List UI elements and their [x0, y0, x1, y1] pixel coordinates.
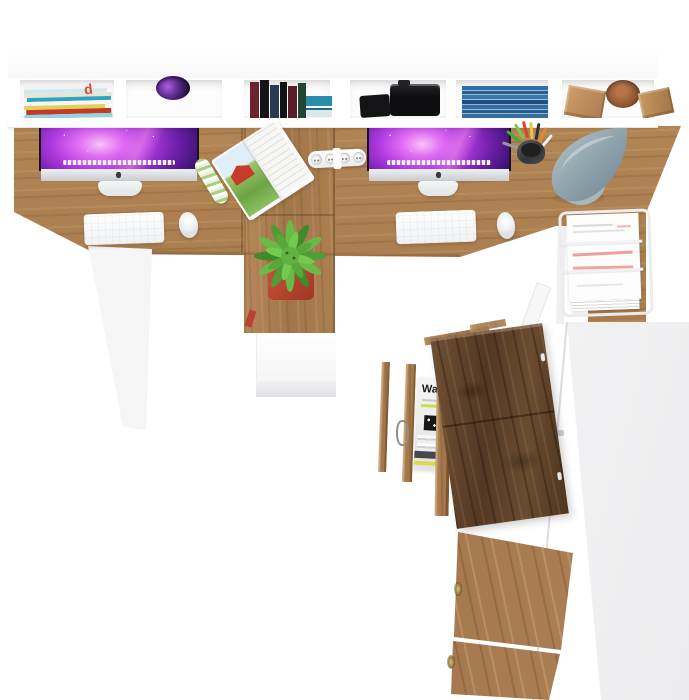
- plant-leaves: [254, 220, 326, 292]
- paper-tray: [558, 208, 652, 317]
- imac-left-stand: [98, 181, 142, 196]
- door-knob: [455, 583, 461, 595]
- cabinet-door-open-dark: [430, 323, 569, 529]
- wood-block-left: [564, 85, 607, 121]
- book-lying-teal: [306, 96, 332, 106]
- middle-cabinet: [256, 333, 336, 397]
- imac-left-screen: [41, 124, 197, 169]
- imac-left-chin: [41, 169, 197, 181]
- camera-lens: [359, 94, 390, 118]
- book-row: [250, 80, 306, 118]
- camera-knob: [398, 80, 410, 86]
- dvd-stack: [462, 86, 548, 118]
- drawer-front-strip: [378, 362, 390, 472]
- imac-left: [40, 122, 198, 198]
- imac-right-dock-reflection: [387, 160, 491, 165]
- keyboard-right: [395, 210, 476, 245]
- hutch-top-panel: [8, 0, 658, 80]
- magazine-stack: [24, 83, 113, 119]
- imac-left-dock-reflection: [63, 160, 175, 165]
- drawer-handle: [396, 420, 409, 446]
- imac-right: [368, 122, 510, 198]
- power-strip: [308, 148, 367, 168]
- wood-bowl: [606, 80, 640, 108]
- keyboard-left: [83, 212, 164, 246]
- apple-logo: [436, 172, 441, 178]
- door-knob: [448, 656, 454, 668]
- imac-right-screen: [369, 124, 509, 169]
- door-hinge: [557, 472, 562, 480]
- power-strip-joint: [332, 148, 341, 169]
- door-hinge: [540, 353, 545, 361]
- imac-right-stand: [418, 181, 458, 196]
- desk-lamp: [545, 118, 637, 210]
- wire-frame: [558, 208, 654, 317]
- apple-logo: [116, 172, 121, 178]
- red-barn: [227, 160, 255, 186]
- lamp-shade: [552, 128, 627, 202]
- potted-plant: [248, 216, 332, 308]
- power-socket: [353, 152, 365, 164]
- camera-body: [390, 84, 440, 116]
- product-photo-desk-set: d: [0, 0, 689, 700]
- wood-block-right: [638, 87, 675, 119]
- pencil-cup: [517, 140, 545, 164]
- colored-pencil: [529, 122, 533, 139]
- power-socket: [311, 154, 323, 166]
- imac-right-chin: [369, 169, 509, 181]
- cable-grommet-hole: [156, 76, 190, 100]
